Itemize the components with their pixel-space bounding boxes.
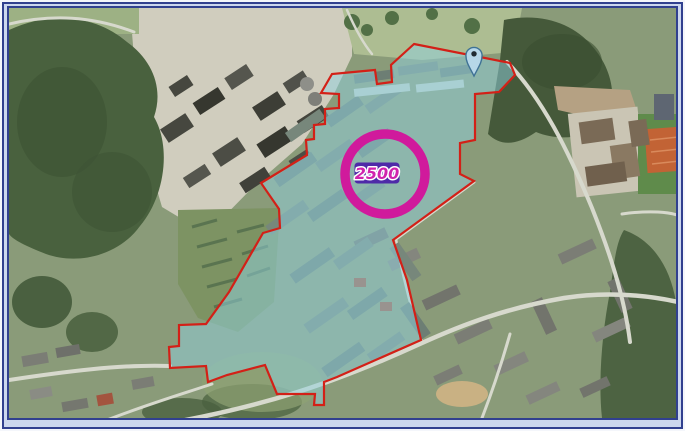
sand-patch [436, 381, 488, 407]
forest-shade [72, 152, 152, 232]
map-screenshot: 2500 [0, 0, 685, 431]
radius-badge-value: 2500 [355, 164, 400, 183]
forest-shade [522, 34, 602, 90]
radius-badge: 2500 [355, 163, 400, 184]
map-frame: 2500 [2, 2, 683, 429]
pin-center-dot [471, 51, 476, 56]
map-viewport[interactable]: 2500 [7, 6, 678, 420]
tree-cluster [12, 276, 72, 328]
